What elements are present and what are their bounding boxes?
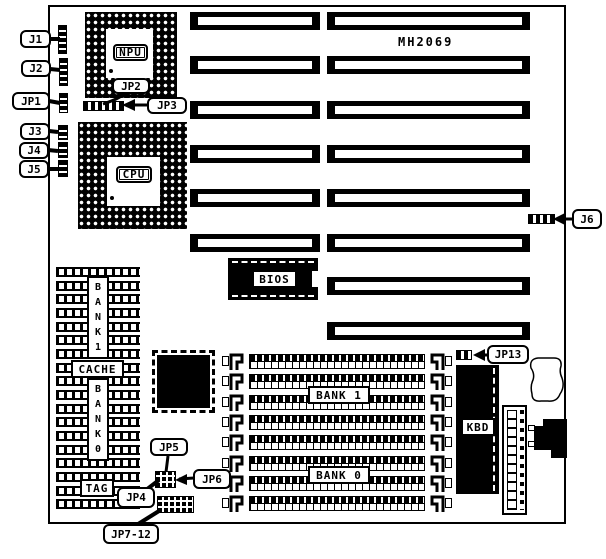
callout-j2: J2 [21,60,51,77]
isa-slot-short [190,189,320,207]
isa-slot-long [327,145,530,163]
connector-j1 [58,25,67,54]
jumper-block-jp7-12 [157,496,194,513]
cpu-pin1-dot [110,196,114,200]
callout-jp4: JP4 [117,487,155,508]
bios-label: BIOS [252,270,297,288]
npu-pin1-dot [109,69,113,73]
power-connector [502,405,527,515]
callout-jp13: JP13 [487,345,529,364]
simm-bank0-label: BANK 0 [308,466,370,484]
simm-socket [222,353,452,370]
isa-slot-short [190,145,320,163]
isa-slot-long [327,322,530,340]
jumper-jp13 [456,350,472,360]
cache-bank0-label: BANK0 [87,378,109,461]
isa-slot-long [327,101,530,119]
isa-slot-short [190,234,320,252]
board-model-label: MH2069 [398,35,453,49]
connector-j6 [528,214,555,224]
callout-jp5: JP5 [150,438,188,456]
simm-socket [222,495,452,512]
simm-socket [222,434,452,451]
qfp-chip [152,350,215,413]
simm-bank1-label: BANK 1 [308,386,370,404]
callout-jp3: JP3 [147,97,187,114]
isa-slot-short [190,101,320,119]
callout-jp7-12: JP7-12 [103,524,159,544]
cpu-label: CPU [116,166,152,183]
keyboard-connector-pin [528,425,535,431]
callout-jp6: JP6 [193,469,231,489]
cache-label: CACHE [71,360,124,378]
npu-label: NPU [113,44,148,61]
connector-j3 [58,125,68,140]
connector-jp1 [59,93,68,113]
isa-slot-short [190,56,320,74]
callout-j4: J4 [19,142,49,159]
callout-j1: J1 [20,30,51,48]
tag-label: TAG [80,479,114,497]
bios-notch [312,271,318,287]
cache-bank1-label: BANK1 [87,276,109,359]
jumper-block-jp4-jp5-jp6 [155,471,176,488]
connector-j4 [58,142,68,158]
kbd-label: KBD [461,418,495,436]
isa-slot-long [327,12,530,30]
jumper-strip-jp2-jp3 [83,101,124,111]
isa-slot-long [327,277,530,295]
keyboard-din-connector-body [534,426,567,450]
callout-j3: J3 [20,123,50,140]
isa-slot-long [327,234,530,252]
connector-j5 [58,160,68,177]
connector-j2 [59,58,68,86]
battery-outline [529,356,565,404]
keyboard-connector-pin [528,441,535,447]
isa-slot-long [327,189,530,207]
simm-socket [222,414,452,431]
callout-jp2: JP2 [112,78,150,94]
callout-j6: J6 [572,209,602,229]
callout-jp1: JP1 [12,92,50,110]
isa-slot-short [190,12,320,30]
isa-slot-long [327,56,530,74]
keyboard-din-connector-foot [551,450,567,458]
callout-j5: J5 [19,160,49,178]
motherboard-diagram: MH2069 NPU CPU BIOS [0,0,606,559]
